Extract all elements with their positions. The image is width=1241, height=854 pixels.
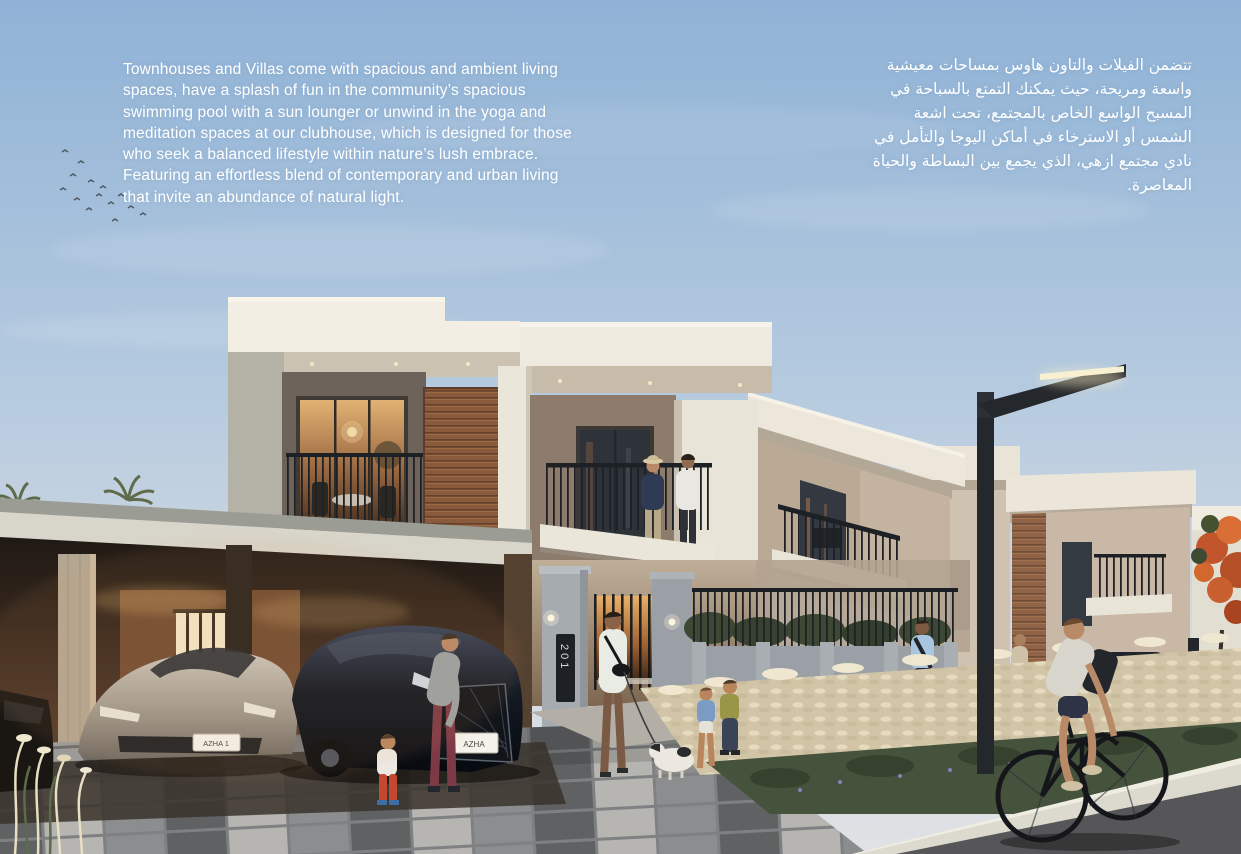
ambient-glow: [0, 540, 520, 780]
intro-paragraph-ar: تتضمن الفيلات والتاون هاوس بمساحات معيشي…: [873, 53, 1192, 197]
crossbody-bag: [612, 664, 630, 677]
intro-paragraph-en: Townhouses and Villas come with spacious…: [123, 59, 572, 208]
balcony-furniture: [812, 528, 842, 548]
house-number: 201: [558, 644, 570, 671]
brochure-page: 201: [0, 0, 1241, 854]
license-plate-secondary-text: AZHA: [463, 740, 485, 749]
